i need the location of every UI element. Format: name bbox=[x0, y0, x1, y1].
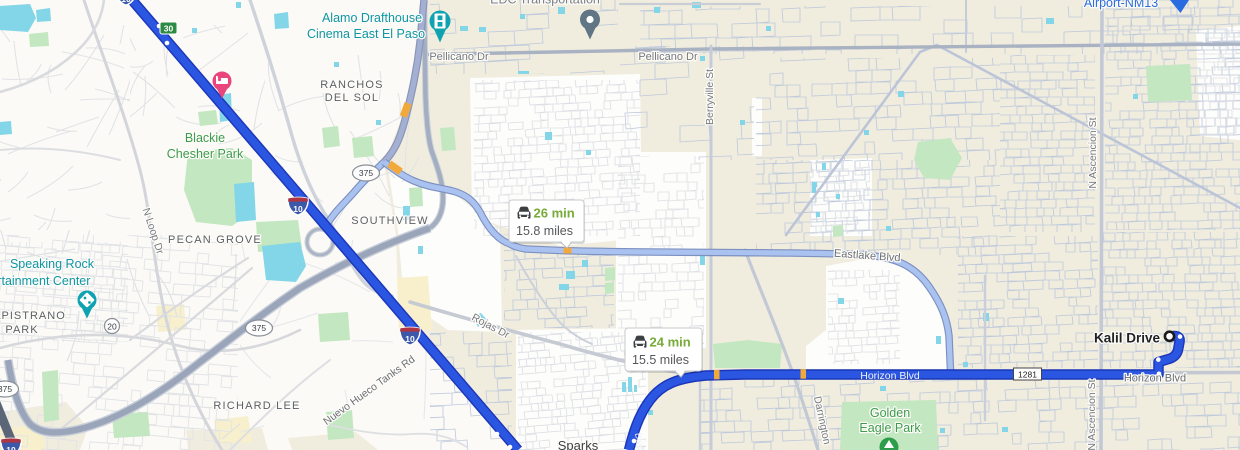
svg-text:10: 10 bbox=[121, 0, 131, 4]
svg-text:SOUTHVIEW: SOUTHVIEW bbox=[351, 215, 428, 227]
svg-text:Speaking Rock: Speaking Rock bbox=[10, 257, 95, 271]
svg-text:Horizon Blvd: Horizon Blvd bbox=[1124, 373, 1186, 385]
svg-text:Blackie: Blackie bbox=[185, 131, 225, 145]
svg-text:Airport-NM13: Airport-NM13 bbox=[1084, 0, 1158, 10]
svg-text:PECAN GROVE: PECAN GROVE bbox=[168, 234, 262, 246]
svg-text:PARK: PARK bbox=[5, 324, 38, 336]
svg-text:Entertainment Center: Entertainment Center bbox=[0, 274, 90, 288]
svg-text:CAPISTRANO: CAPISTRANO bbox=[0, 310, 66, 322]
svg-text:DEL SOL: DEL SOL bbox=[325, 92, 379, 104]
svg-text:10: 10 bbox=[6, 445, 16, 450]
svg-text:30: 30 bbox=[164, 24, 174, 34]
svg-text:24 min: 24 min bbox=[650, 335, 691, 350]
svg-text:EDC Transportation: EDC Transportation bbox=[490, 0, 600, 7]
svg-text:26 min: 26 min bbox=[534, 206, 575, 221]
svg-text:Berryville St: Berryville St bbox=[704, 69, 716, 125]
svg-text:Cinema East El Paso: Cinema East El Paso bbox=[307, 27, 425, 41]
svg-text:Pellicano Dr: Pellicano Dr bbox=[429, 51, 489, 63]
svg-text:RANCHOS: RANCHOS bbox=[320, 79, 383, 91]
svg-text:N Ascencion St: N Ascencion St bbox=[1086, 379, 1098, 450]
svg-text:Sparks: Sparks bbox=[558, 438, 599, 450]
svg-text:10: 10 bbox=[405, 334, 415, 344]
svg-text:RICHARD LEE: RICHARD LEE bbox=[213, 400, 300, 412]
svg-text:375: 375 bbox=[359, 168, 373, 178]
svg-text:20: 20 bbox=[107, 322, 117, 332]
svg-text:Eagle Park: Eagle Park bbox=[859, 421, 921, 435]
svg-text:375: 375 bbox=[0, 384, 12, 394]
svg-text:Alamo Drafthouse: Alamo Drafthouse bbox=[322, 11, 422, 25]
svg-text:Golden: Golden bbox=[870, 406, 910, 420]
svg-text:Pellicano Dr: Pellicano Dr bbox=[638, 51, 698, 63]
svg-text:15.5 miles: 15.5 miles bbox=[632, 353, 689, 367]
svg-text:Chesher Park: Chesher Park bbox=[167, 147, 244, 161]
svg-text:1281: 1281 bbox=[1018, 370, 1037, 380]
svg-text:Kalil Drive: Kalil Drive bbox=[1094, 331, 1161, 346]
svg-text:15.8 miles: 15.8 miles bbox=[516, 224, 573, 238]
svg-text:375: 375 bbox=[252, 323, 266, 333]
svg-text:Horizon Blvd: Horizon Blvd bbox=[860, 370, 920, 382]
svg-text:10: 10 bbox=[293, 204, 303, 214]
svg-text:N Ascencion St: N Ascencion St bbox=[1087, 117, 1099, 188]
